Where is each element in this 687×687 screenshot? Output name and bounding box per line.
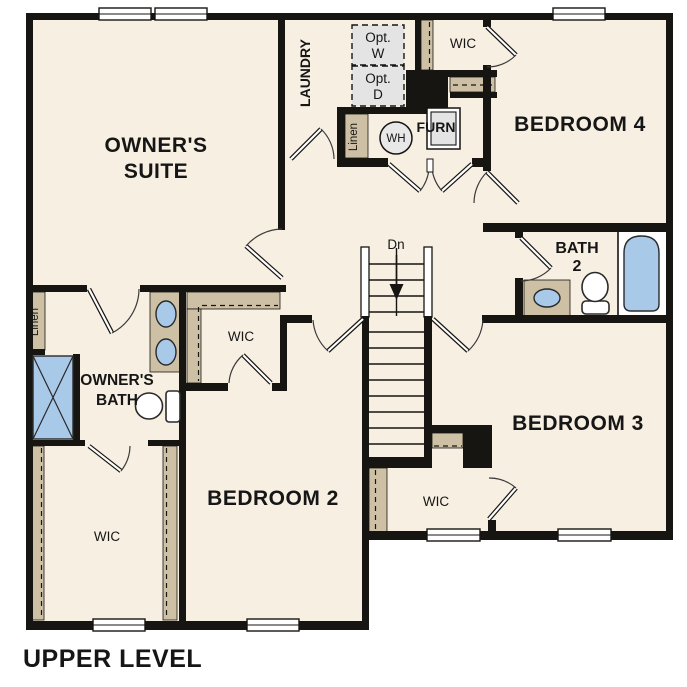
stair-rail-left <box>361 247 369 317</box>
owners-suite-label-2: SUITE <box>124 160 188 183</box>
window <box>553 8 605 20</box>
bath2-toilet-tank <box>582 301 609 314</box>
owners-toilet-tank <box>166 391 180 422</box>
floor-plan-drawing: OWNER'S SUITE LAUNDRY Opt. W Opt. D Line… <box>0 0 687 687</box>
owners-bath-label-2: BATH <box>96 392 138 409</box>
plan-title: UPPER LEVEL <box>23 645 202 673</box>
wic-left-rod-b <box>163 446 177 620</box>
opt-washer-label-1: Opt. <box>365 30 391 45</box>
exterior-notch <box>369 540 673 632</box>
bedroom2-label: BEDROOM 2 <box>207 487 339 510</box>
bedroom4-label: BEDROOM 4 <box>514 113 646 136</box>
laundry-linen-label: Linen <box>348 123 360 151</box>
water-heater-label: WH <box>386 133 405 145</box>
laundry-label: LAUNDRY <box>297 38 313 107</box>
wic-left-rod-a <box>32 446 44 620</box>
window <box>558 529 611 541</box>
wic-top-label: WIC <box>450 36 476 51</box>
furnace-label: FURN <box>417 119 456 135</box>
opt-dryer-label-1: Opt. <box>365 71 391 86</box>
bedroom3-label: BEDROOM 3 <box>512 412 644 435</box>
wic-top-rod <box>421 20 433 70</box>
wic-bedroom3-label: WIC <box>423 494 449 509</box>
bath2-label-1: BATH <box>555 240 598 257</box>
window <box>93 619 145 631</box>
window <box>99 8 151 20</box>
bath2-sink <box>534 289 560 307</box>
bath2-label-2: 2 <box>573 258 582 275</box>
wic-left-label: WIC <box>94 529 120 544</box>
owners-suite-label-1: OWNER'S <box>105 134 208 157</box>
stairs-down-label: Dn <box>387 237 404 252</box>
owners-bath-label-1: OWNER'S <box>80 372 153 389</box>
window <box>247 619 299 631</box>
wic-b3-rod-left <box>369 468 387 532</box>
window <box>155 8 207 20</box>
floor-plan: OWNER'S SUITE LAUNDRY Opt. W Opt. D Line… <box>0 0 687 687</box>
wic-center-label: WIC <box>228 329 254 344</box>
wic-center-rod-top <box>187 292 280 309</box>
window <box>427 529 480 541</box>
bath2-toilet-bowl <box>582 273 608 302</box>
owners-toilet-bowl <box>136 393 163 419</box>
opt-dryer-label-2: D <box>373 87 383 102</box>
opt-washer-label-2: W <box>372 46 385 61</box>
owners-linen-label: Linen <box>29 308 41 336</box>
stair-rail-right <box>424 247 432 317</box>
owners-sink-1 <box>156 301 176 327</box>
owners-sink-2 <box>156 339 176 365</box>
bathtub <box>624 236 659 311</box>
